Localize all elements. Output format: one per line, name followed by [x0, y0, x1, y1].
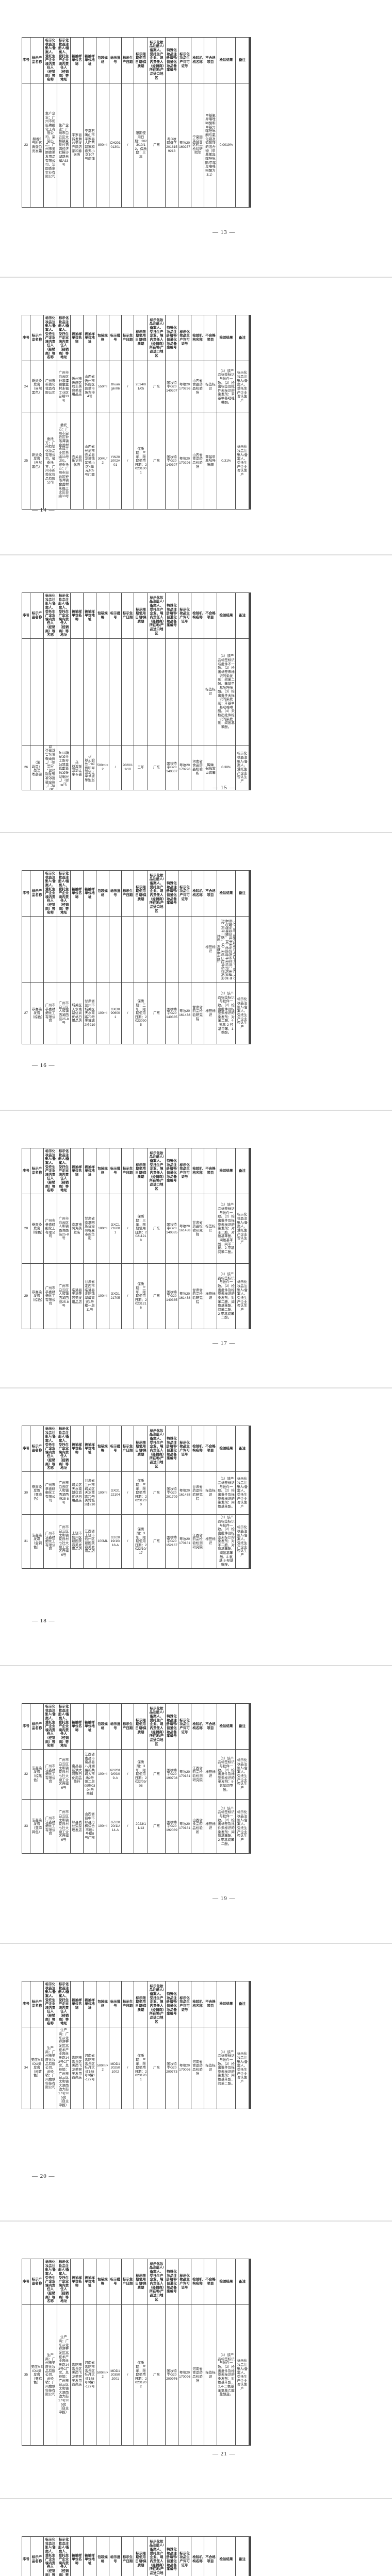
table-cell: 广州市白云区人和镇西湖西街25-8号 — [57, 983, 70, 1044]
table-cell: 保质期：三年，限期使用日期：20231202 — [134, 2305, 148, 2445]
column-header: 标示化妆品注册人/备案人、受托生产企业境内责任人（经销商）等地址 — [57, 2537, 70, 2576]
table-cell: 广州市白云区太和镇夏良村七社大塘工业区自编6号 — [57, 1800, 70, 1853]
column-header: 不合格项目 — [204, 1981, 217, 2027]
column-header: 标示化妆品生产许可证号 — [178, 1704, 191, 1749]
column-header: 被抽样单位名称 — [71, 1704, 83, 1749]
table-cell: 生产企业：广州市白云区太和镇夏良村第四经济社榕沙湖路自编A33号 — [57, 83, 70, 207]
table-cell: 800ml — [96, 83, 109, 207]
column-header: 检验结果 — [217, 1704, 235, 1749]
column-header: 不合格项目 — [204, 1704, 217, 1749]
column-header: 检验结果 — [217, 2537, 235, 2576]
table-cell: 洁鑫染发霜（金铜色） — [30, 1515, 43, 1568]
table-cell: 标示化妆品注册人/备案人、受托生产企业否认生产 — [236, 1194, 249, 1263]
column-header: 标示生产日期 — [122, 2537, 134, 2576]
column-header: 标示化妆品生产许可证号 — [178, 315, 191, 361]
table-cell: 100ml — [96, 1194, 109, 1263]
page-number: — 14 — — [32, 507, 55, 513]
column-header: 检验机构名称 — [191, 1981, 204, 2027]
table-cell — [71, 639, 83, 745]
table-cell — [44, 917, 57, 982]
column-header: 标示化妆品生产许可证号 — [178, 2259, 191, 2304]
table-cell: 标示化妆品注册人/备案人、受托生产企业否认生产 — [236, 745, 249, 790]
column-header: 被抽样单位地址 — [84, 1148, 96, 1194]
column-header: 检验结果 — [217, 1981, 235, 2027]
column-header: 标示化妆品注册人/备案人、受托生产企业境内责任人（经销商）等地址 — [57, 593, 70, 638]
table-cell: 平罗县诚发舞台美发养颜店家和春天店 — [71, 83, 83, 207]
page-number: — 19 — — [213, 1895, 236, 1902]
table-cell: 江西省药品检验检测研究院 — [191, 1515, 204, 1568]
column-header: 标示限期使用日期/保质期 — [134, 1426, 148, 1471]
table-cell — [166, 917, 178, 982]
inspection-table: 序号标示产品名称标示化妆品注册人/备案人、受托生产企业境内责任人（经销商）等名称… — [22, 37, 251, 208]
column-header: 标示限期使用日期/保质期 — [134, 1704, 148, 1749]
table-cell: 生产企业：广州市彩弘精细化工有限公司，荣誉出品：广州市爱丽德美发用品有限公司，法… — [44, 83, 57, 207]
table-cell: / — [122, 1472, 134, 1514]
column-header: 包装规格 — [96, 2537, 109, 2576]
column-header: 被抽样单位名称 — [71, 1148, 83, 1194]
column-header: 标示产品名称 — [30, 315, 43, 361]
column-header: 检验机构名称 — [191, 2537, 204, 2576]
column-header: 标示化妆品注册人/备案人、受托生产企业、境内责任人（经销商）所在地/产品进口地区 — [148, 38, 165, 83]
column-header: 标示产品名称 — [30, 871, 43, 916]
table-cell: 三年 — [134, 745, 148, 790]
column-header: 标示产品名称 — [30, 1981, 43, 2027]
table-cell: 62/2019/09/09-A — [109, 1750, 121, 1799]
column-header: 特殊化妆品注册编号/普通化妆品备案编号 — [166, 38, 178, 83]
column-header: 被抽样单位地址 — [84, 593, 96, 638]
table-cell: 广东 — [148, 983, 165, 1044]
table-cell: 广州市恭喜精细化工有限公司 — [44, 983, 57, 1044]
column-header: 标示批号 — [109, 1426, 121, 1471]
table-cell: （1）该产品标签标识与批件一致。（2）检出批件及标签未标识的染发剂：对氨基苯酚、… — [217, 2305, 235, 2445]
table-cell: 河南省洛阳市洛龙区牡丹大道148号0幢1-127号 — [84, 2305, 96, 2445]
table-cell: 保质期：三年，限期使用日期：20230905 — [134, 983, 148, 1044]
table-cell: 500ml×2 — [96, 2027, 109, 2109]
table-cell: 苯基甲基吡唑啉酮 — [204, 413, 217, 509]
table-cell: 恭喜染发膏（棕色） — [30, 1264, 43, 1329]
column-header: 不合格项目 — [204, 315, 217, 361]
column-header: 标示生产日期 — [122, 2259, 134, 2304]
column-header: 标示化妆品注册人/备案人、受托生产企业境内责任人（经销商）等名称 — [44, 1148, 57, 1194]
table-cell: （1）该产品标签标识与批件一致。（2）检出批件及标签未标识的染发剂：6-氨基间甲… — [217, 1750, 235, 1799]
column-header: 标示化妆品注册人/备案人、受托生产企业境内责任人（经销商）等地址 — [57, 1426, 70, 1471]
table-cell: 国妆特字G20140385 — [166, 1194, 178, 1263]
column-header: 被抽样单位名称 — [71, 2259, 83, 2304]
column-header: 标示批号 — [109, 315, 121, 361]
column-header: 不合格项目 — [204, 871, 217, 916]
table-cell: 粤妆20170181 — [178, 1750, 191, 1799]
column-header: 标示产品名称 — [30, 2259, 43, 2304]
table-cell — [122, 639, 134, 745]
column-header: 标示限期使用日期/保质期 — [134, 871, 148, 916]
column-header: 标示化妆品注册人/备案人、受托生产企业境内责任人（经销商）等名称 — [44, 1426, 57, 1471]
table-cell: 标示化妆品注册人/备案人、受托生产企业否认生产 — [236, 1515, 249, 1568]
column-header: 标示化妆品注册人/备案人、受托生产企业、境内责任人（经销商）所在地/产品进口地区 — [148, 593, 165, 638]
column-header: 包装规格 — [96, 1148, 109, 1194]
inspection-table: 序号标示产品名称标示化妆品注册人/备案人、受托生产企业境内责任人（经销商）等名称… — [22, 2536, 251, 2576]
table-cell: 宁夏石嘴山市平罗县人民西路家和春天小区107号商铺 — [84, 83, 96, 207]
column-header: 标示化妆品注册人/备案人、受托生产企业、境内责任人（经销商）所在地/产品进口地区 — [148, 1148, 165, 1194]
column-header: 特殊化妆品注册编号/普通化妆品备案编号 — [166, 1148, 178, 1194]
table-cell: 粤妆20170296 — [178, 745, 191, 790]
table-cell: （1）该产品标签标识与批件一致。（2）检出批件及标签未标识的染发剂：对苯二胺、4… — [217, 983, 235, 1044]
column-header: 标示生产日期 — [122, 1426, 134, 1471]
column-header: 不合格项目 — [204, 593, 217, 638]
table-cell: / — [122, 1750, 134, 1799]
column-header: 标示产品名称 — [30, 593, 43, 638]
table-cell: 标签标识 — [204, 361, 217, 413]
column-header: 不合格项目 — [204, 1148, 217, 1194]
table-cell: 广州市新菀化妆品有限公司 — [44, 361, 57, 413]
column-header: 标示化妆品注册人/备案人、受托生产企业境内责任人（经销商）等地址 — [57, 2259, 70, 2304]
table-cell: 26 — [22, 745, 30, 790]
table-cell: 广东 — [148, 413, 165, 509]
table-cell: 保质期：3年，限期使用日期：2022/09/08 — [134, 1750, 148, 1799]
table-cell: 国妆特字G20140307 — [166, 413, 178, 509]
column-header: 包装规格 — [96, 1704, 109, 1749]
column-header: 标示限期使用日期/保质期 — [134, 2259, 148, 2304]
table-cell: 广州市白云区人和镇西湖西街25-8号 — [57, 1194, 70, 1263]
table-cell: 0.38% — [217, 745, 235, 790]
column-header: 标示批号 — [109, 2259, 121, 2304]
table-cell: 2020/11/10 — [122, 745, 134, 790]
column-header: 特殊化妆品注册编号/普通化妆品备案编号 — [166, 871, 178, 916]
table-cell: 粤妆20161438 — [178, 983, 191, 1044]
table-cell — [191, 639, 204, 745]
table-cell: GXD0906001 — [109, 983, 121, 1044]
table-cell: GXD121705 — [109, 1264, 121, 1329]
table-cell: 标示化妆品注册人/备案人、受托生产企业否认生产 — [236, 361, 249, 413]
column-header: 序号 — [22, 1426, 30, 1471]
table-cell: 广东 — [148, 1194, 165, 1263]
table-cell: 洁鑫染发膏（亚麻褐色） — [30, 1800, 43, 1853]
table-cell — [178, 639, 191, 745]
table-cell: （1）该产品标签标识与批件一致。（2）检出批件及标签未标识的染发剂：对苯二胺、对… — [217, 1194, 235, 1263]
column-header: 标示生产日期 — [122, 871, 134, 916]
table-cell: 广东 — [148, 1515, 165, 1568]
column-header: 检验结果 — [217, 1426, 235, 1471]
column-header: 被抽样单位地址 — [84, 871, 96, 916]
table-cell: （1）该产品标签标识与批件一致。（2）检出批件及标签未标识的染发剂：对苯二胺、间… — [217, 1264, 235, 1329]
column-header: 序号 — [22, 315, 30, 361]
inspection-table: 序号标示产品名称标示化妆品注册人/备案人、受托生产企业境内责任人（经销商）等名称… — [22, 1426, 251, 1569]
column-header: 标示批号 — [109, 1148, 121, 1194]
table-cell: 标示化妆品注册人/备案人、受托生产企业否认生产 — [236, 413, 249, 509]
column-header: 检验结果 — [217, 871, 235, 916]
table-cell — [96, 639, 109, 745]
table-cell — [148, 917, 165, 982]
table-cell: 河南省食品药品检验所 — [191, 2027, 204, 2109]
column-header: 检验机构名称 — [191, 1704, 204, 1749]
column-header: 检验结果 — [217, 315, 235, 361]
table-cell: 限期使用日期：2023/10/12，保质期：三年 — [134, 83, 148, 207]
column-header: 标示化妆品注册人/备案人、受托生产企业境内责任人（经销商）等地址 — [57, 38, 70, 83]
table-cell: 0.0019% — [217, 83, 235, 207]
table-cell: 国妆特字G20201709 — [166, 1472, 178, 1514]
column-header: 标示化妆品注册人/备案人、受托生产企业境内责任人（经销商）等名称 — [44, 2259, 57, 2304]
table-cell: 500ml×2 — [96, 745, 109, 790]
table-cell: 广东 — [148, 1472, 165, 1514]
table-cell: 广东 — [148, 1800, 165, 1853]
table-cell: 山西省长治市壶关县龙泉镇紫苑小区4单元105号门面 — [84, 413, 96, 509]
table-cell: 标签标识 — [204, 2027, 217, 2109]
column-header: 序号 — [22, 1704, 30, 1749]
column-header: 标示化妆品注册人/备案人、受托生产企业、境内责任人（经销商）所在地/产品进口地区 — [148, 315, 165, 361]
table-cell: 广州市白云区钟落潭镇金盆村永福工业区自编33号 — [57, 361, 70, 413]
table-cell — [30, 639, 43, 745]
table-cell: 标示化妆品注册人/备案人、受托生产企业否认生产 — [236, 1264, 249, 1329]
column-header: 标示化妆品注册人/备案人、受托生产企业境内责任人（经销商）等地址 — [57, 315, 70, 361]
table-cell: 城关区天水南路优尚优格日用品店 — [71, 1472, 83, 1514]
inspection-table: 序号标示产品名称标示化妆品注册人/备案人、受托生产企业境内责任人（经销商）等名称… — [22, 315, 251, 510]
table-cell: 生产商：广州市新菀化妆品有限公司，出品商：广州圣薇化妆品有限公司 — [44, 745, 57, 790]
column-header: 标示化妆品注册人/备案人、受托生产企业境内责任人（经销商）等地址 — [57, 1981, 70, 2027]
column-header: 标示产品名称 — [30, 1704, 43, 1749]
inspection-table: 序号标示产品名称标示化妆品注册人/备案人、受托生产企业境内责任人（经销商）等名称… — [22, 1703, 251, 1854]
column-header: 检验机构名称 — [191, 871, 204, 916]
table-cell: 河南省洛阳市洛龙区牡丹大道148号0幢1-127号 — [84, 2027, 96, 2109]
column-header: 标示限期使用日期/保质期 — [134, 315, 148, 361]
table-cell: 标示化妆品注册人/备案人、受托生产企业否认生产 — [236, 1472, 249, 1514]
table-cell: 550ml — [96, 361, 109, 413]
table-cell: 100ml — [96, 1800, 109, 1853]
table-cell: YW201002A01 — [109, 413, 121, 509]
table-cell: 保质期：三年，限期使用日期：20231201 — [134, 2027, 148, 2109]
table-cell: zhuanglin06 — [109, 361, 121, 413]
table-cell: 宁夏回族自治区药品检验研究院 — [191, 83, 204, 207]
table-cell: / — [122, 83, 134, 207]
column-header: 标示批号 — [109, 38, 121, 83]
document-page: 序号标示产品名称标示化妆品注册人/备案人、受托生产企业境内责任人（经销商）等名称… — [0, 2222, 392, 2499]
table-cell: / — [122, 361, 134, 413]
column-header: 标示化妆品注册人/备案人、受托生产企业境内责任人（经销商）等名称 — [44, 38, 57, 83]
table-cell: / — [122, 2305, 134, 2445]
column-header: 备注 — [236, 38, 249, 83]
column-header: 包装规格 — [96, 593, 109, 638]
table-cell: 标签标识 — [204, 1194, 217, 1263]
column-header: 被抽样单位名称 — [71, 38, 83, 83]
table-cell: 国妆特字G20200976 — [166, 2305, 178, 2445]
column-header: 备注 — [236, 1981, 249, 2027]
table-cell: 河南省食品药品检验所 — [191, 745, 204, 790]
table-cell: 保质期：3年，限期使用日期：2022/10/17 — [134, 1515, 148, 1568]
page-number: — 15 — — [213, 785, 236, 791]
inspection-table: 序号标示产品名称标示化妆品注册人/备案人、受托生产企业境内责任人（经销商）等名称… — [22, 870, 251, 1044]
column-header: 特殊化妆品注册编号/普通化妆品备案编号 — [166, 315, 178, 361]
column-header: 标示化妆品注册人/备案人、受托生产企业、境内责任人（经销商）所在地/产品进口地区 — [148, 2537, 165, 2576]
table-cell: MDD1202501002 — [109, 2027, 121, 2109]
column-header: 特殊化妆品注册编号/普通化妆品备案编号 — [166, 593, 178, 638]
table-cell: 上饶市信州区建国美容美发用品店 — [71, 1515, 83, 1568]
table-cell: 江西省药品检验检测研究院 — [191, 1750, 204, 1799]
table-cell: / — [122, 1800, 134, 1853]
column-header: 标示化妆品生产许可证号 — [178, 2537, 191, 2576]
table-cell: 新派染发膏（自然黑色） — [30, 361, 43, 413]
table-cell: 500ml×2 — [96, 2305, 109, 2445]
column-header: 不合格项目 — [204, 38, 217, 83]
table-cell: 国妆特字G20140385 — [166, 1264, 178, 1329]
table-cell: 粤妆20160257 — [178, 83, 191, 207]
column-header: 备注 — [236, 1426, 249, 1471]
column-header: 标示化妆品生产许可证号 — [178, 1426, 191, 1471]
table-cell: 河南省新乡市卫滨区自由路20-1号楼下商户 — [84, 745, 96, 790]
table-cell: / — [122, 1515, 134, 1568]
column-header: 标示生产日期 — [122, 315, 134, 361]
table-cell: （1）该产品标签标识与批件一致。（2）检出批件及标签未标识的染发剂：间氨基苯酚、… — [217, 2027, 235, 2109]
column-header: 被抽样单位地址 — [84, 1981, 96, 2027]
table-cell: 广州市白云区人和镇西湖西街25-8号 — [57, 1472, 70, 1514]
column-header: 序号 — [22, 1148, 30, 1194]
table-cell: 赫香5号时代真蛋白烫发霜 — [30, 83, 43, 207]
table-cell: 24 — [22, 361, 30, 413]
table-cell: 国妆特字G20140385 — [166, 983, 178, 1044]
column-header: 标示限期使用日期/保质期 — [134, 1148, 148, 1194]
table-cell: 甘肃省兰州市城关区天水南路70号美博城2楼210 — [84, 1472, 96, 1514]
table-cell: 生产商：广东从化经济开发区高技术产业园永贤路143号C厂房，总经销：广州市白云区… — [57, 2027, 70, 2109]
table-cell — [96, 917, 109, 982]
column-header: 被抽样单位名称 — [71, 315, 83, 361]
document-page: 序号标示产品名称标示化妆品注册人/备案人、受托生产企业境内责任人（经销商）等名称… — [0, 1944, 392, 2222]
table-cell: 广州市洁鑫精细化工有限公司 — [44, 1515, 57, 1568]
table-cell — [191, 917, 204, 982]
column-header: 标示限期使用日期/保质期 — [134, 38, 148, 83]
table-cell: / — [109, 745, 121, 790]
table-cell: GZ/2020/11/14-A — [109, 1800, 121, 1853]
column-header: 备注 — [236, 871, 249, 916]
column-header: 检验结果 — [217, 1148, 235, 1194]
document-page: 序号标示产品名称标示化妆品注册人/备案人、受托生产企业境内责任人（经销商）等名称… — [0, 1666, 392, 1944]
column-header: 检验机构名称 — [191, 2259, 204, 2304]
document-page: 序号标示产品名称标示化妆品注册人/备案人、受托生产企业境内责任人（经销商）等名称… — [0, 833, 392, 1111]
column-header: 标示化妆品注册人/备案人、受托生产企业境内责任人（经销商）等地址 — [57, 871, 70, 916]
table-cell — [44, 639, 57, 745]
table-cell: 广州市洁鑫精细化工有限公司 — [44, 1800, 57, 1853]
table-cell: 2023/11/13 — [134, 1800, 148, 1853]
table-cell: 甘肃省药品检验研究院 — [191, 1194, 204, 1263]
column-header: 序号 — [22, 871, 30, 916]
table-cell: 广州市白云区太和镇夏良村七社大塘工业区自编6号 — [57, 1515, 70, 1568]
column-header: 标示化妆品注册人/备案人、受托生产企业、境内责任人（经销商）所在地/产品进口地区 — [148, 1981, 165, 2027]
page-number: — 18 — — [32, 1618, 55, 1624]
table-cell: 新源染发膏（自然黑） — [30, 745, 43, 790]
column-header: 检验结果 — [217, 38, 235, 83]
table-cell: MDD1203502001 — [109, 2305, 121, 2445]
table-cell: 广州市恭喜精细化工有限公司 — [44, 1194, 57, 1263]
table-cell: （1）该产品标签标识与批件一致。（2）检出标签及批件未标识的染发剂：苯基甲基吡唑… — [217, 361, 235, 413]
table-cell: CH20101301 — [109, 83, 121, 207]
table-cell: 山西省食品药品检验所 — [191, 413, 204, 509]
column-header: 标示化妆品生产许可证号 — [178, 1981, 191, 2027]
table-cell: 25 — [22, 413, 30, 509]
table-cell: G2/2019/10/18-A — [109, 1515, 121, 1568]
table-cell: 广东 — [148, 745, 165, 790]
column-header: 特殊化妆品注册编号/普通化妆品备案编号 — [166, 2259, 178, 2304]
table-cell: 标签标识 — [204, 1472, 217, 1514]
document-page: 序号标示产品名称标示化妆品注册人/备案人、受托生产企业境内责任人（经销商）等名称… — [0, 555, 392, 833]
table-cell: 30 — [22, 1472, 30, 1514]
table-cell: 28 — [22, 1194, 30, 1263]
column-header: 被抽样单位地址 — [84, 38, 96, 83]
column-header: 标示生产日期 — [122, 1704, 134, 1749]
table-cell: 标签标识 — [204, 1750, 217, 1799]
table-cell: 洛阳市洛龙区美尚飞龙美容美发用品商店 — [71, 2027, 83, 2109]
table-cell: 粤妆20170096 — [178, 2305, 191, 2445]
table-cell: GXD122104 — [109, 1472, 121, 1514]
table-cell: 粤妆20161438 — [178, 1264, 191, 1329]
table-cell: 山西省食品药品检验所 — [191, 361, 204, 413]
column-header: 序号 — [22, 1981, 30, 2027]
column-header: 标示产品名称 — [30, 1426, 43, 1471]
column-header: 被抽样单位地址 — [84, 2259, 96, 2304]
table-cell: 广东 — [148, 1750, 165, 1799]
table-cell: 河南省食品药品检验所 — [191, 2305, 204, 2445]
column-header: 序号 — [22, 2259, 30, 2304]
column-header: 检验机构名称 — [191, 38, 204, 83]
column-header: 检验机构名称 — [191, 315, 204, 361]
table-cell: 标示化妆品注册人/备案人、受托生产企业否认生产 — [236, 2027, 249, 2109]
inspection-table: 序号标示产品名称标示化妆品注册人/备案人、受托生产企业境内责任人（经销商）等名称… — [22, 1981, 251, 2109]
table-cell: （1）该产品标签标识与批件不一致。（2）检出标签未标识的染发剂：间苯二酚、苯基甲… — [217, 639, 235, 745]
inspection-table: 序号标示产品名称标示化妆品注册人/备案人、受托生产企业境内责任人（经销商）等名称… — [22, 1148, 251, 1329]
table-cell: 临夏市阿海美发店 — [71, 1194, 83, 1263]
table-cell: 国妆特字G20190708 — [166, 1750, 178, 1799]
table-cell: 标示化妆品注册人/备案人、受托生产企业否认生产 — [236, 2305, 249, 2445]
table-cell: 粤妆20170296 — [178, 413, 191, 509]
table-cell: 保质期：三年，限期使用日期：20231216 — [134, 1264, 148, 1329]
table-cell: 保质期：三年，限期使用日期：20231001 — [134, 413, 148, 509]
document-page: 序号标示产品名称标示化妆品注册人/备案人、受托生产企业境内责任人（经销商）等名称… — [0, 2499, 392, 2576]
table-cell: 粤妆20170096 — [178, 2027, 191, 2109]
table-cell: 标签标识 — [204, 1264, 217, 1329]
table-cell: 美度MEIDU染发膏（闷青色） — [30, 2027, 43, 2109]
table-cell: 标示化妆品注册人/备案人、受托生产企业否认生产 — [236, 1800, 249, 1853]
column-header: 标示批号 — [109, 2537, 121, 2576]
table-cell: 粤妆20170181 — [178, 1800, 191, 1853]
column-header: 备注 — [236, 315, 249, 361]
table-cell: 委托方：广州有望化妆品有限公司，被委托方：广州市新菀化妆品有限公司 — [44, 413, 57, 509]
column-header: 标示化妆品注册人/备案人、受托生产企业境内责任人（经销商）等名称 — [44, 1704, 57, 1749]
column-header: 标示化妆品生产许可证号 — [178, 871, 191, 916]
column-header: 包装规格 — [96, 315, 109, 361]
table-cell — [236, 917, 249, 982]
table-cell — [109, 639, 121, 745]
table-cell: GXC1216001 — [109, 1194, 121, 1263]
column-header: 备注 — [236, 1148, 249, 1194]
table-cell: 标签标识 — [204, 983, 217, 1044]
column-header: 标示限期使用日期/保质期 — [134, 1981, 148, 2027]
table-cell: 壶关县乐记日化店 — [71, 413, 83, 509]
table-cell: 粤妆20170181 — [178, 1515, 191, 1568]
table-cell: 100ml — [96, 1750, 109, 1799]
column-header: 检验结果 — [217, 593, 235, 638]
table-cell: 祁县尚丝造型理发店 — [71, 1800, 83, 1853]
column-header: 包装规格 — [96, 1426, 109, 1471]
table-cell: 委托方：广州市白云区钟落潭镇金盆村永福工业区自编33号201，被委托方：广州市白… — [57, 413, 70, 509]
column-header: 被抽样单位名称 — [71, 2537, 83, 2576]
column-header: 标示生产日期 — [122, 593, 134, 638]
column-header: 特殊化妆品注册编号/普通化妆品备案编号 — [166, 1704, 178, 1749]
table-cell: / — [122, 413, 134, 509]
document-page: 序号标示产品名称标示化妆品注册人/备案人、受托生产企业境内责任人（经销商）等名称… — [0, 278, 392, 555]
table-cell: 苯基甲基吡唑啉酮 — [204, 745, 217, 790]
table-cell — [122, 917, 134, 982]
column-header: 标示化妆品生产许可证号 — [178, 593, 191, 638]
table-cell: 南昌县新洪大阿飘日化用品商行 — [71, 1750, 83, 1799]
page-number: — 17 — — [213, 1340, 236, 1346]
table-cell — [71, 917, 83, 982]
table-cell: 甘肃省药品检验研究院 — [191, 983, 204, 1044]
column-header: 标示限期使用日期/保质期 — [134, 593, 148, 638]
